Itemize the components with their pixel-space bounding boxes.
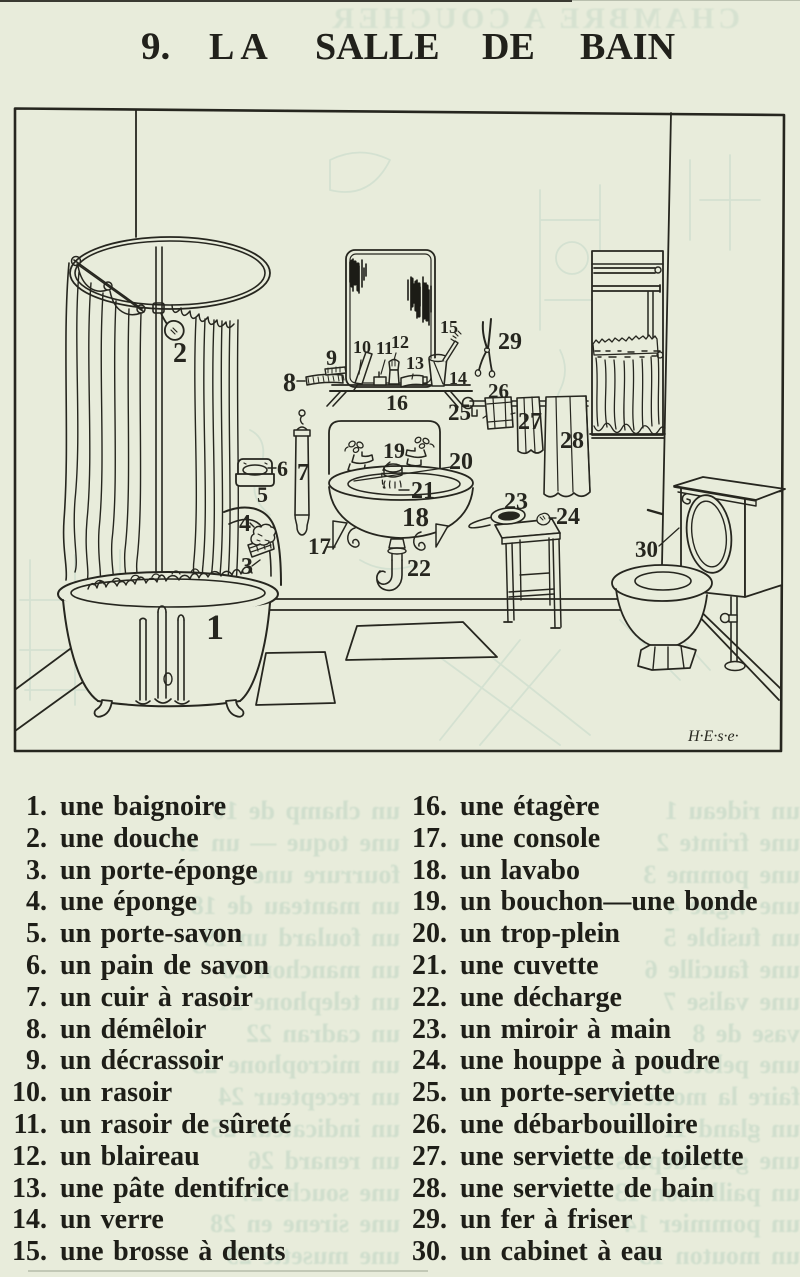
svg-text:22: 22 [407, 556, 431, 582]
svg-text:6: 6 [277, 456, 288, 481]
svg-text:24: 24 [556, 504, 580, 530]
svg-text:20: 20 [449, 449, 473, 475]
svg-text:25: 25 [448, 400, 471, 425]
svg-text:4: 4 [239, 511, 251, 537]
svg-text:16: 16 [386, 390, 408, 415]
svg-text:19: 19 [383, 438, 405, 463]
svg-text:13: 13 [406, 353, 424, 373]
svg-text:7: 7 [297, 460, 309, 486]
svg-text:10: 10 [353, 337, 371, 357]
svg-text:27: 27 [518, 409, 542, 435]
svg-text:9: 9 [326, 345, 337, 370]
svg-text:8: 8 [283, 368, 296, 397]
svg-text:28: 28 [560, 428, 584, 454]
svg-text:21: 21 [411, 478, 435, 504]
svg-text:5: 5 [257, 482, 268, 507]
svg-text:23: 23 [504, 489, 528, 515]
svg-text:2: 2 [173, 338, 187, 369]
svg-text:14: 14 [449, 368, 467, 388]
svg-text:3: 3 [241, 554, 253, 580]
svg-text:18: 18 [402, 502, 429, 532]
svg-text:12: 12 [391, 332, 409, 352]
svg-text:26: 26 [488, 379, 509, 403]
svg-text:15: 15 [440, 317, 458, 337]
svg-text:30: 30 [635, 537, 658, 562]
svg-text:1: 1 [206, 607, 224, 647]
svg-text:29: 29 [498, 329, 522, 355]
svg-text:H·E·s·e·: H·E·s·e· [687, 728, 739, 745]
